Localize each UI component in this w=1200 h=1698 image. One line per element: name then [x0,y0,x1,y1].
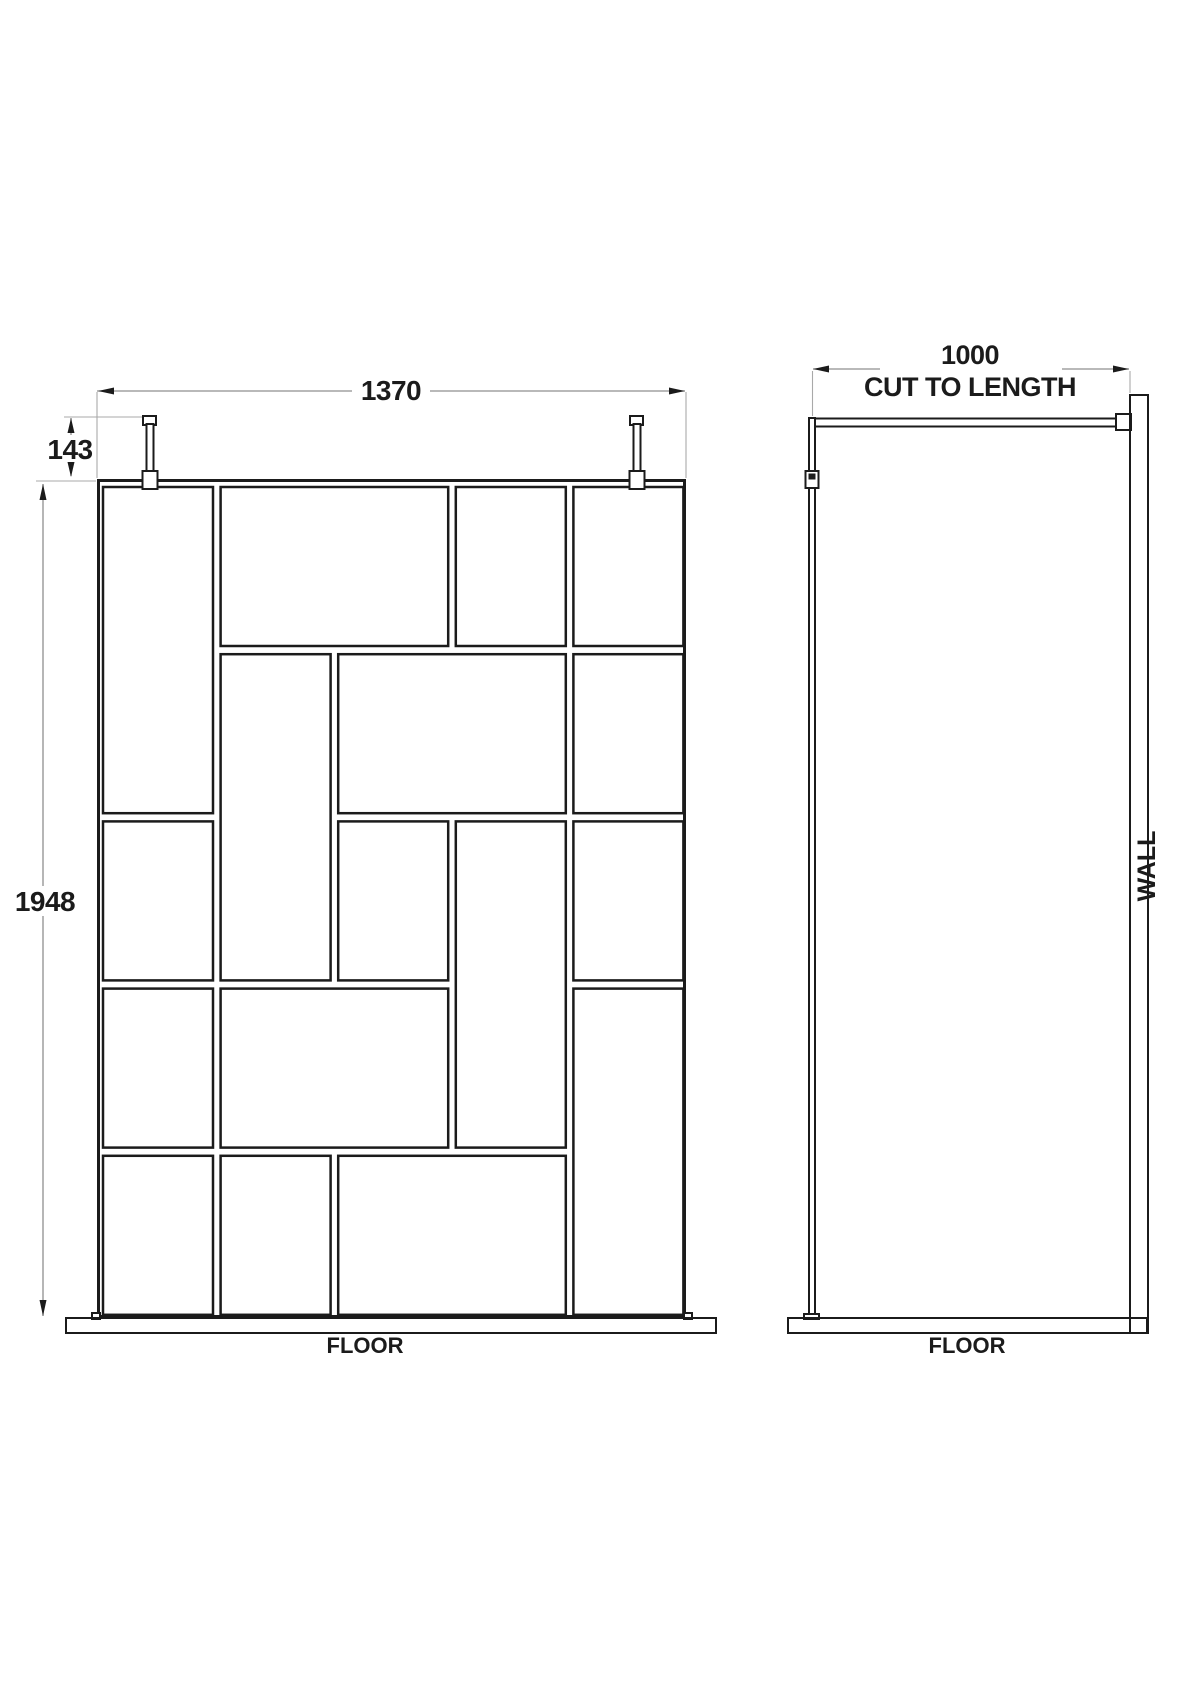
post-clamp [630,471,645,489]
technical-drawing-page: FLOOR 1370 143 1948 [0,0,1200,1698]
post-pole [634,424,641,473]
post-clamp [143,471,158,489]
glass-pane [103,1156,213,1315]
dimension-post-drop: 143 [47,417,142,477]
glass-pane [573,487,683,646]
floor-label-front: FLOOR [327,1333,404,1358]
glass-panes [103,487,683,1315]
floor-hatch-front [66,1318,716,1333]
post-drop-dim-text: 143 [47,434,92,465]
glass-pane [103,821,213,980]
glass-pane [338,654,566,813]
glass-pane [456,487,566,646]
glass-pane [573,821,683,980]
floor-hatch-side [788,1318,1147,1333]
dimension-width: 1370 [97,375,686,478]
glass-pane [338,821,448,980]
glass-pane [103,487,213,813]
height-dim-text: 1948 [15,886,75,917]
dimension-height: 1948 [15,481,96,1316]
width-dim-text: 1370 [361,375,421,406]
glass-pane [221,1156,331,1315]
shower-screen-diagram: FLOOR 1370 143 1948 [0,0,1200,1698]
depth-dim-text: 1000 [941,340,999,370]
post-pole [147,424,154,473]
front-view: FLOOR 1370 143 1948 [15,375,716,1358]
dimension-depth: 1000 CUT TO LENGTH [813,340,1131,416]
glass-pane [221,487,449,646]
ceiling-post-left [143,416,158,489]
support-arm [815,419,1117,427]
ceiling-post-right [630,416,645,489]
panel-clamp [806,471,819,488]
depth-note-text: CUT TO LENGTH [864,372,1076,402]
glass-pane [221,989,449,1148]
side-view: WALL FLOOR 1000 CUT TO LENGTH [788,340,1161,1358]
glass-pane [573,654,683,813]
wall-label: WALL [1133,831,1161,902]
glass-pane [221,654,331,980]
glass-pane [573,989,683,1315]
glass-pane [103,989,213,1148]
wall-bracket [1116,414,1131,430]
glass-pane [338,1156,566,1315]
floor-label-side: FLOOR [929,1333,1006,1358]
panel-edge-profile [809,418,815,1315]
glass-pane [456,821,566,1147]
